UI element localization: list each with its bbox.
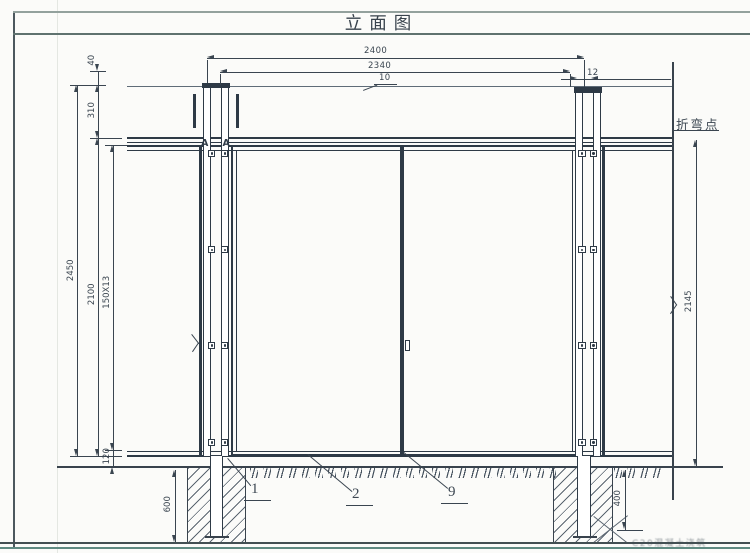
dim-arrow [207, 55, 214, 59]
part-label-2: 2 [352, 487, 360, 502]
dim-arrow [693, 459, 697, 466]
left-post-base [205, 536, 229, 538]
extension-line [584, 60, 585, 87]
dim-arrow [220, 69, 227, 73]
dim-top-outer: 2400 [364, 47, 387, 56]
dim-arrow [172, 535, 176, 542]
title-band-bottom-line [13, 33, 750, 35]
center-divider-bar [400, 147, 404, 455]
extension-line [207, 60, 208, 83]
mesh-clamp [221, 150, 228, 157]
mesh-clamp [578, 342, 585, 349]
divider-clip [405, 340, 411, 351]
mesh-clamp [578, 246, 585, 253]
tick [617, 530, 643, 531]
right-post-cap [574, 87, 602, 92]
dim-arrow [95, 138, 99, 145]
dim-left-bend-height: 310 [88, 88, 97, 132]
section-letter: A [201, 139, 208, 149]
dim-left-offset-top: 40 [88, 38, 97, 82]
mesh-clamp [221, 439, 228, 446]
elevation-drawing-sheet: A A 2400 2340 10 12 40 310 2 [0, 0, 750, 553]
right-post-tube [593, 93, 601, 457]
dim-foundation-depth: 600 [164, 482, 173, 526]
dim-line [207, 58, 584, 59]
dim-line [98, 71, 99, 457]
tick [105, 145, 127, 146]
dim-post-embed: 400 [614, 476, 623, 520]
sheet-bottom-border [0, 542, 750, 544]
dim-arrow [74, 85, 78, 92]
mesh-clamp [221, 342, 228, 349]
soil-hatch [250, 468, 556, 478]
section-cut-bar [236, 94, 239, 128]
dim-arrow [95, 449, 99, 456]
dim-mesh-cells: 150X13 [103, 270, 112, 314]
mesh-clamp [208, 342, 215, 349]
extension-line [220, 74, 221, 85]
right-post-base [573, 536, 597, 538]
dim-arrow [693, 140, 697, 147]
dim-line [113, 145, 114, 467]
dim-left-bottom-gap: 120 [103, 434, 112, 478]
drawing-title: 立面图 [13, 13, 750, 33]
dim-arrow [622, 522, 626, 529]
mesh-clamp [208, 246, 215, 253]
dim-top-inner: 2340 [368, 62, 391, 71]
dim-arrow [74, 449, 78, 456]
dim-arrow [622, 470, 626, 477]
label-underline [346, 505, 373, 506]
sheet-bottom-accent [0, 547, 750, 549]
part-label-1: 1 [251, 482, 259, 497]
dim-left-total-height: 2450 [67, 248, 76, 292]
dim-arrow [577, 55, 584, 59]
label-underline [244, 500, 271, 501]
mesh-clamp [221, 246, 228, 253]
part-label-9: 9 [448, 485, 456, 500]
mesh-clamp [590, 342, 597, 349]
dim-mesh-wire: 10 [379, 74, 391, 83]
right-cut-edge [672, 62, 673, 500]
mesh-clamp [208, 150, 215, 157]
mesh-clamp [208, 439, 215, 446]
mesh-clamp [590, 246, 597, 253]
dim-line [625, 470, 626, 531]
dim-left-panel-height: 2100 [88, 272, 97, 316]
dim-line [77, 85, 78, 456]
dim-post-width: 12 [587, 69, 599, 78]
mesh-clamp [590, 150, 597, 157]
dim-line [696, 140, 697, 467]
label-underline [441, 503, 468, 504]
label-underline [672, 130, 719, 131]
dim-line [220, 72, 570, 73]
tick [70, 456, 122, 457]
mesh-clamp [578, 150, 585, 157]
left-post-cap [202, 83, 231, 88]
mesh-clamp [578, 439, 585, 446]
mesh-clamp [590, 439, 597, 446]
right-post-embedded [577, 456, 591, 536]
section-cut-bar [193, 94, 196, 128]
fold-line [57, 0, 58, 553]
left-panel-edge [199, 145, 202, 456]
sheet-left-border [13, 11, 15, 548]
dim-line [561, 79, 671, 80]
section-letter: A [223, 139, 230, 149]
left-post-embedded [210, 456, 223, 536]
right-post-tube [575, 93, 583, 457]
dim-arrow [110, 145, 114, 152]
right-panel-edge [602, 145, 605, 456]
dim-bend-to-ground: 2145 [685, 279, 694, 323]
dim-arrow [570, 76, 577, 80]
dim-line [175, 470, 176, 544]
dim-arrow [172, 470, 176, 477]
dim-arrow [563, 69, 570, 73]
